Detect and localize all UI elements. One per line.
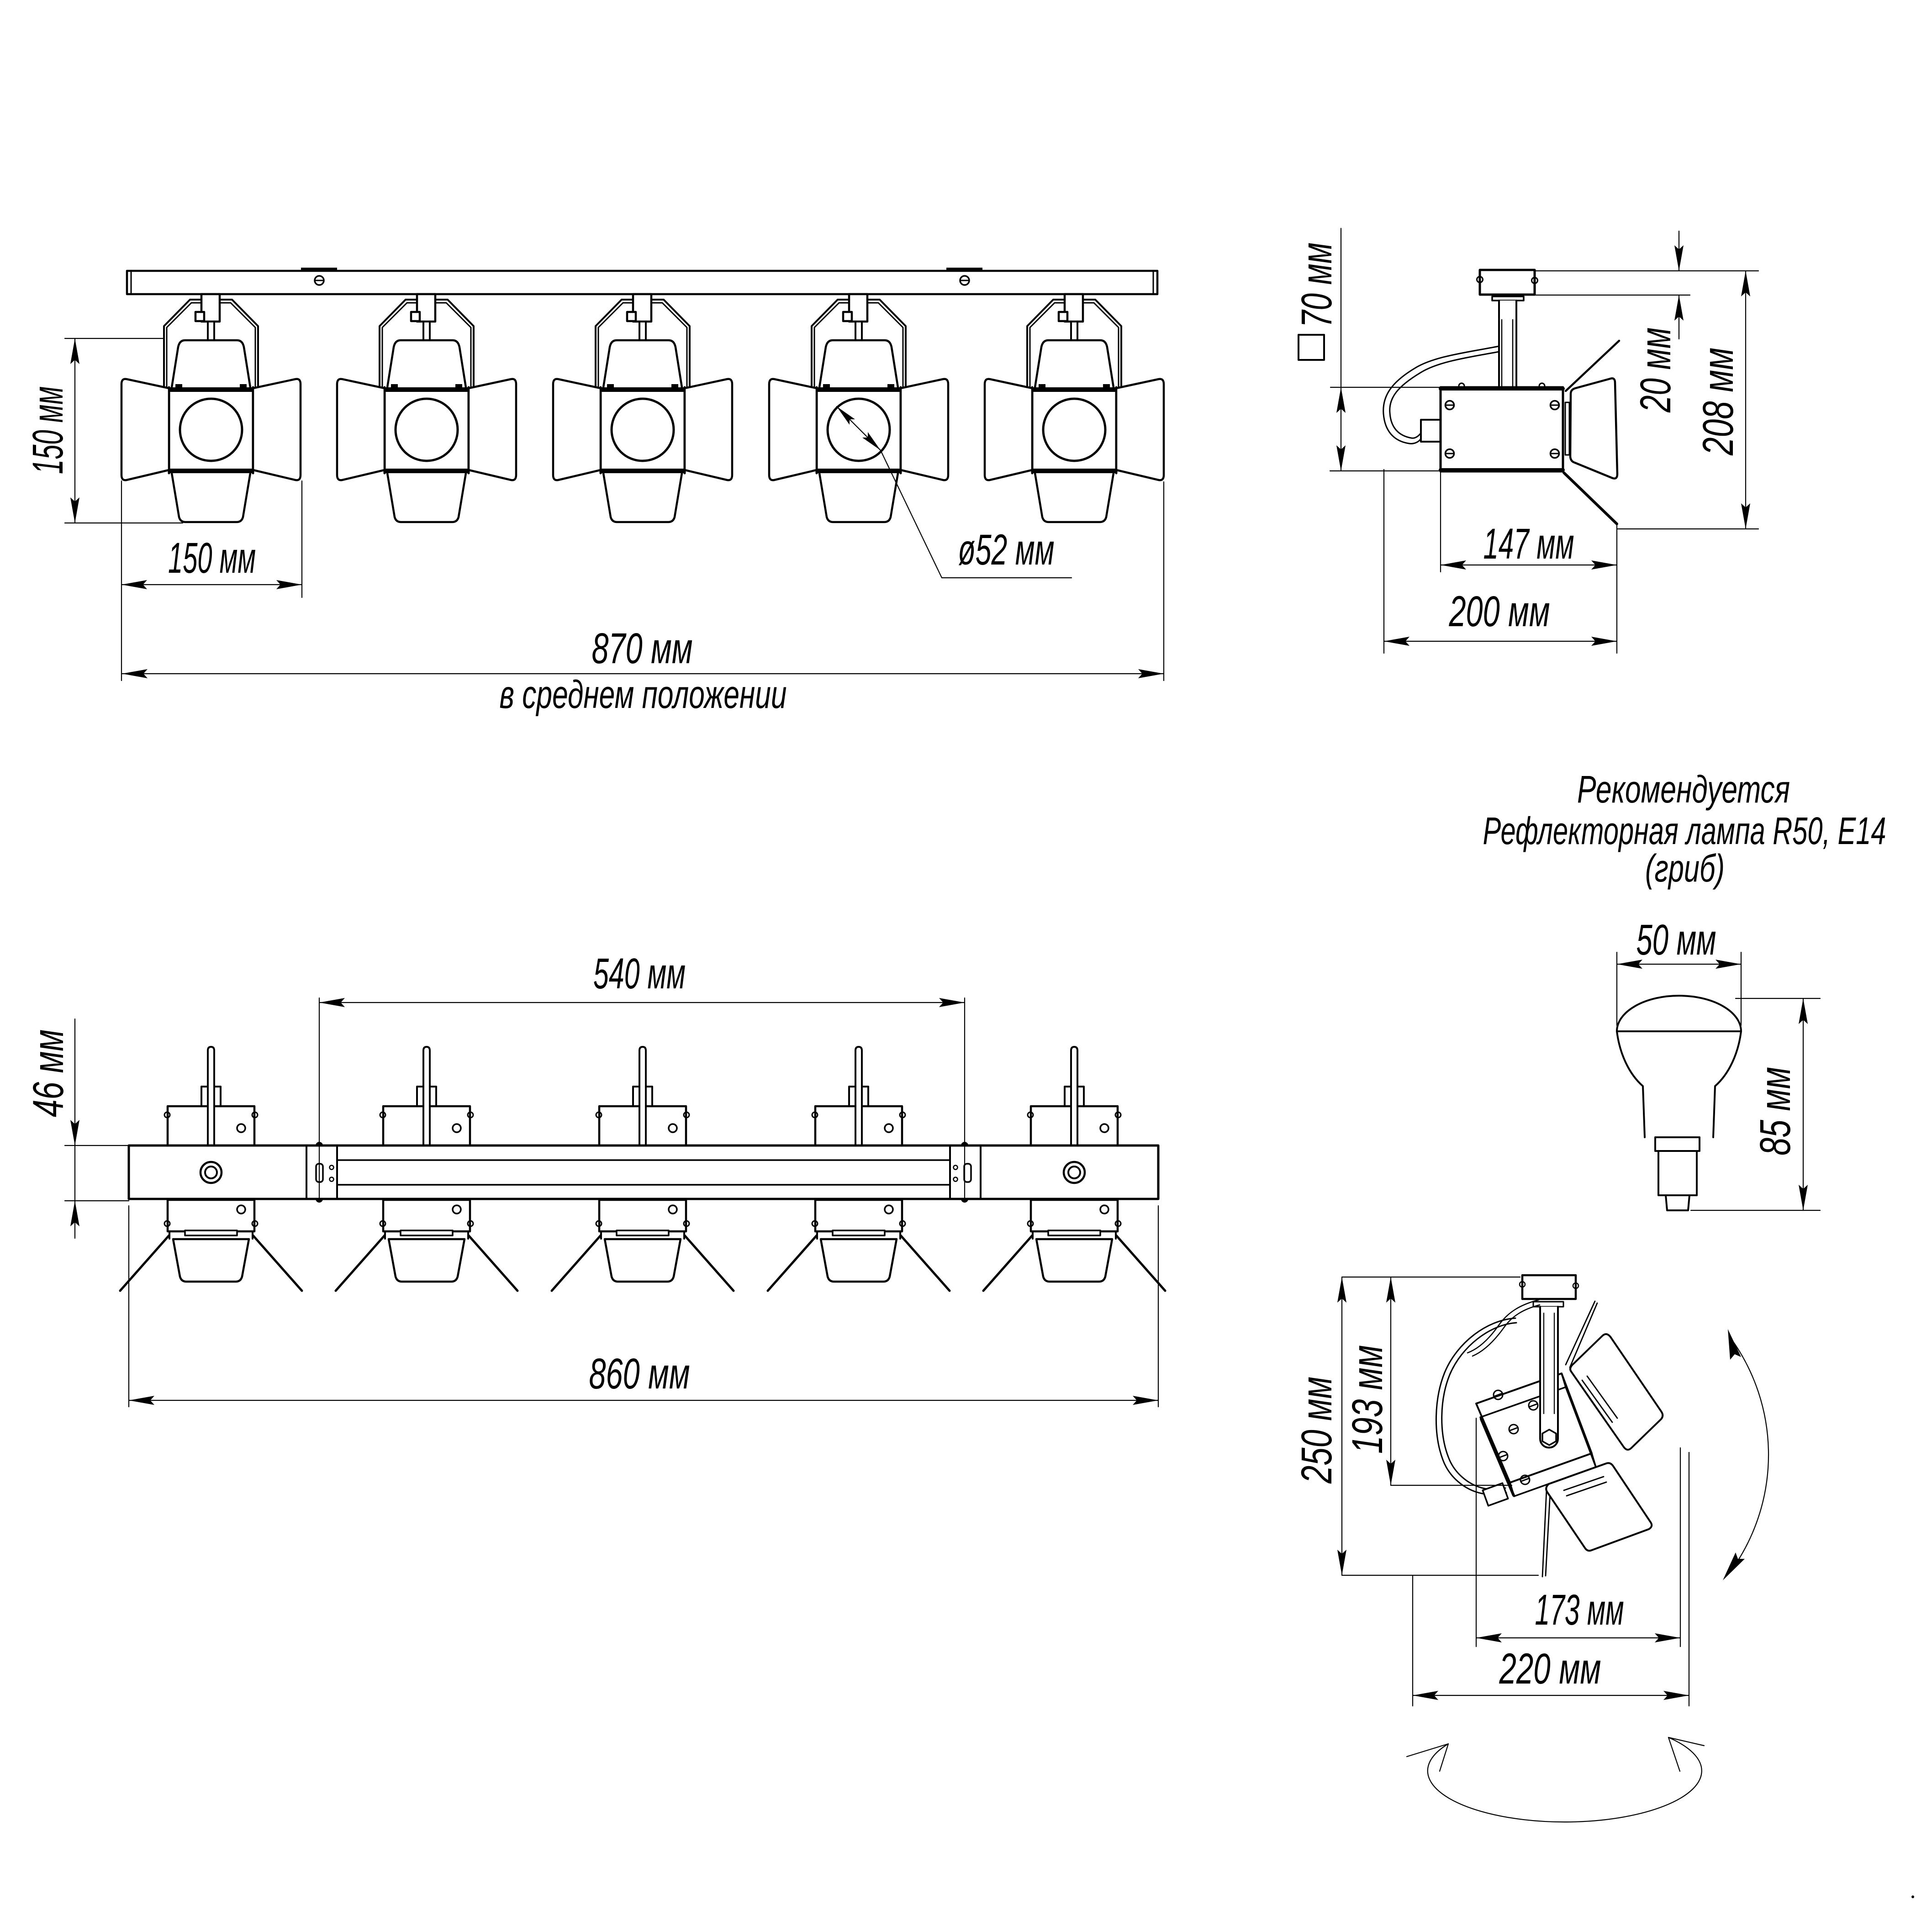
svg-text:(гриб): (гриб): [1645, 847, 1725, 890]
svg-text:150 мм: 150 мм: [24, 386, 72, 474]
svg-text:Рекомендуется: Рекомендуется: [1577, 768, 1790, 811]
svg-text:173 мм: 173 мм: [1535, 1586, 1624, 1634]
svg-text:200 мм: 200 мм: [1449, 587, 1550, 636]
svg-text:250 мм: 250 мм: [1293, 1377, 1341, 1484]
svg-text:85 мм: 85 мм: [1751, 1067, 1800, 1156]
svg-text:208 мм: 208 мм: [1694, 348, 1742, 456]
svg-text:147 мм: 147 мм: [1483, 520, 1574, 568]
svg-text:220 мм: 220 мм: [1499, 1645, 1601, 1693]
svg-text:870 мм: 870 мм: [592, 624, 693, 673]
svg-text:в среднем положении: в среднем положении: [500, 673, 787, 717]
svg-text:540 мм: 540 мм: [593, 950, 686, 998]
svg-text:860 мм: 860 мм: [589, 1350, 690, 1398]
svg-text:46 мм: 46 мм: [24, 1029, 73, 1117]
svg-text:70 мм: 70 мм: [1293, 243, 1341, 327]
svg-text:193 мм: 193 мм: [1343, 1345, 1392, 1454]
svg-text:150 мм: 150 мм: [168, 534, 256, 582]
svg-text:20 мм: 20 мм: [1631, 327, 1680, 413]
svg-text:50 мм: 50 мм: [1636, 916, 1716, 964]
svg-text:ø52 мм: ø52 мм: [958, 526, 1055, 574]
svg-text:Рефлекторная лампа R50, E14: Рефлекторная лампа R50, E14: [1483, 809, 1886, 852]
